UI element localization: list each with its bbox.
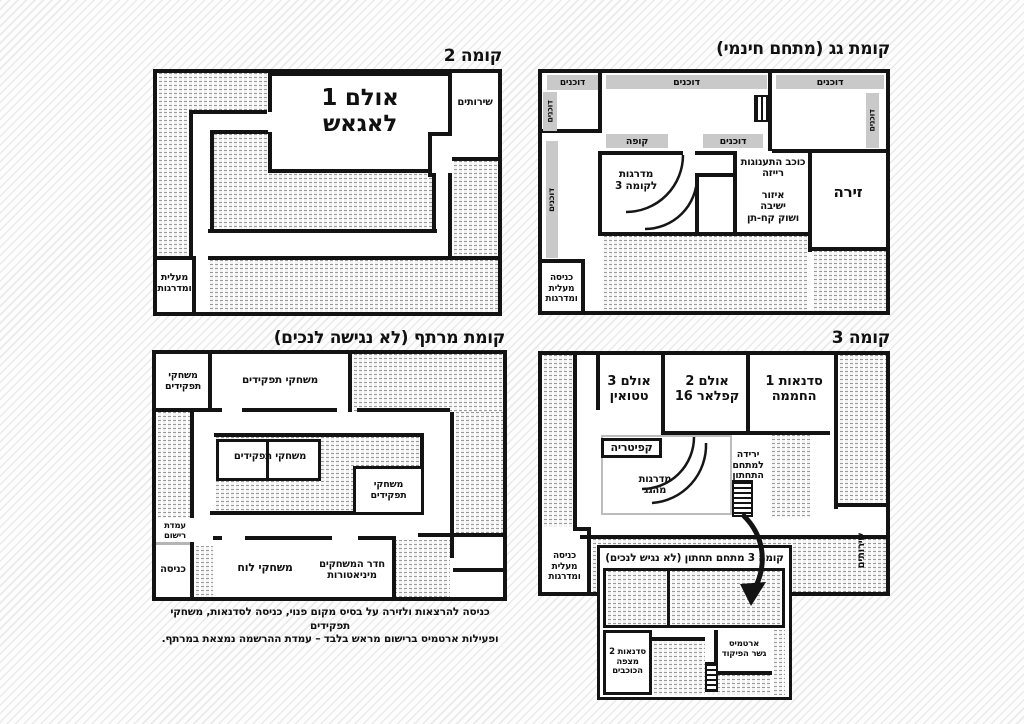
basement-board-games-label: משחקי לוח bbox=[225, 560, 305, 576]
roof-booths-bar: דוכנים bbox=[776, 75, 884, 89]
floor2-plan: מעלית ומדרגות אולם 1 לאגאש שירותים bbox=[153, 69, 502, 316]
wall bbox=[714, 671, 772, 675]
hatch-area bbox=[454, 412, 503, 533]
wall bbox=[208, 229, 437, 233]
roof-arena-label: זירה bbox=[812, 183, 884, 203]
roof-booths-bar: דוכנים bbox=[703, 134, 763, 148]
stairs-icon bbox=[754, 95, 770, 122]
roof-pleasure-star-label: כוכב התענוגות רייזה bbox=[737, 155, 809, 181]
roof-booths-bar: דוכנים bbox=[547, 75, 598, 90]
basement-rpg-label: משחקי תפקידים bbox=[216, 370, 344, 390]
convention-floor-plans-map: קומה 2 מעלית ומדרגות אולם 1 לאגאש שירותי… bbox=[0, 0, 1024, 724]
wall bbox=[834, 355, 838, 509]
floor3-lower-workshops2-label: סדנאות 2 מצפה הכוכבים bbox=[603, 632, 652, 693]
hatch-area bbox=[352, 354, 503, 412]
wall bbox=[189, 110, 193, 260]
stairs-icon bbox=[705, 662, 718, 692]
floor3-cafeteria-label: קפיטריה bbox=[601, 438, 662, 458]
wall bbox=[357, 408, 450, 412]
basement-plan: משחקי תפקידים משחקי תפקידים עמדת רישום כ… bbox=[152, 350, 507, 601]
hatch-area bbox=[392, 540, 450, 597]
floor3-descent-label: ירידה למתחם התחתון bbox=[718, 448, 778, 484]
wall bbox=[190, 412, 194, 518]
wall bbox=[750, 431, 830, 435]
wall bbox=[649, 637, 705, 641]
floor2-title: קומה 2 bbox=[444, 46, 502, 66]
hatch-area bbox=[452, 161, 498, 256]
hatch-area bbox=[194, 546, 213, 597]
wall bbox=[212, 408, 222, 412]
wall bbox=[348, 354, 352, 412]
basement-miniatures-label: חדר המשחקים מיניאטורות bbox=[312, 554, 392, 586]
wall bbox=[581, 259, 585, 311]
wall bbox=[580, 535, 886, 539]
roof-booths-bar: דוכנים bbox=[606, 75, 767, 89]
wall bbox=[156, 408, 212, 412]
wall bbox=[573, 355, 577, 527]
wall bbox=[245, 536, 332, 540]
basement-title: קומת מרתף (לא נגישה לנכים) bbox=[274, 328, 505, 348]
roof-plan: דוכנים דוכנים דוכנים דוכנים דוכנים דוכני… bbox=[538, 69, 890, 315]
hatch-area bbox=[772, 630, 785, 695]
floor3-hall3-label: אולם 3 טטואין bbox=[589, 372, 669, 408]
wall bbox=[208, 354, 212, 412]
wall bbox=[453, 568, 503, 572]
wall bbox=[210, 130, 214, 233]
roof-booths-bar-vertical: דוכנים bbox=[546, 141, 558, 258]
wall bbox=[772, 149, 886, 153]
floor2-toilets-label: שירותים bbox=[452, 95, 498, 111]
hatch-area bbox=[156, 412, 190, 518]
basement-rpg-label: משחקי תפקידים bbox=[220, 449, 320, 465]
floor3-lower-artemis-label: ארטמיס גשר הפיקוד bbox=[718, 632, 770, 668]
wall bbox=[242, 408, 337, 412]
wall bbox=[587, 531, 591, 592]
roof-seating-market-label: איזור ישיבה ושוק קח-תן bbox=[737, 187, 809, 227]
hatch-area bbox=[157, 112, 189, 256]
wall bbox=[838, 503, 886, 507]
basement-caption: כניסה להרצאות ולזירה על בסיס מקום פנוי, … bbox=[152, 606, 508, 647]
wall bbox=[665, 431, 750, 435]
wall bbox=[208, 256, 498, 260]
roof-booths-bar-vertical: דוכנים bbox=[543, 92, 557, 131]
wall bbox=[812, 247, 886, 251]
door-arc-icon bbox=[602, 153, 702, 233]
floor3-workshops1-label: סדנאות 1 החממה bbox=[754, 372, 834, 408]
floor3-title: קומה 3 bbox=[832, 328, 890, 348]
basement-rpg-label: משחקי תפקידים bbox=[355, 474, 422, 508]
hatch-area bbox=[157, 73, 267, 112]
hatch-area bbox=[838, 355, 886, 505]
wall bbox=[214, 433, 424, 437]
wall bbox=[190, 542, 194, 597]
wall bbox=[192, 256, 196, 312]
wall bbox=[542, 259, 585, 263]
hatch-area bbox=[542, 355, 573, 527]
wall bbox=[699, 173, 737, 177]
wall bbox=[213, 536, 222, 540]
hatch-area bbox=[652, 640, 705, 695]
hatch-area bbox=[208, 260, 498, 312]
floor3-entrance-label: כניסה מעלית ומדרגות bbox=[542, 545, 587, 589]
floor3-hall2-label: אולם 2 קפלאר 16 bbox=[667, 372, 747, 408]
hatch-area bbox=[602, 236, 808, 311]
floor2-elevator-stairs-label: מעלית ומדרגות bbox=[157, 260, 192, 308]
roof-title: קומת גג (מתחם חינמי) bbox=[716, 39, 890, 59]
basement-entrance-label: כניסה bbox=[156, 560, 190, 580]
basement-registration-label: עמדת רישום bbox=[156, 520, 194, 544]
roof-cashier-bar: קופה bbox=[606, 134, 668, 148]
roof-booths-bar-vertical: דוכנים bbox=[866, 93, 879, 148]
wall bbox=[392, 536, 396, 597]
wall bbox=[189, 110, 267, 114]
wall bbox=[358, 536, 392, 540]
basement-rpg-label: משחקי תפקידים bbox=[158, 368, 208, 396]
wall bbox=[212, 130, 272, 134]
floor3-toilets-label: שירותים bbox=[842, 513, 882, 589]
wall bbox=[448, 161, 452, 256]
wall bbox=[418, 533, 503, 537]
wall bbox=[448, 157, 498, 161]
floor2-hall1-label: אולם 1 לאגאש bbox=[268, 79, 452, 143]
hatch-area bbox=[812, 251, 886, 311]
hatched-room bbox=[603, 568, 670, 628]
roof-entrance-label: כניסה מעלית ומדרגות bbox=[542, 267, 581, 311]
wall bbox=[598, 73, 602, 133]
arrow-to-lower-level-icon bbox=[734, 512, 778, 608]
